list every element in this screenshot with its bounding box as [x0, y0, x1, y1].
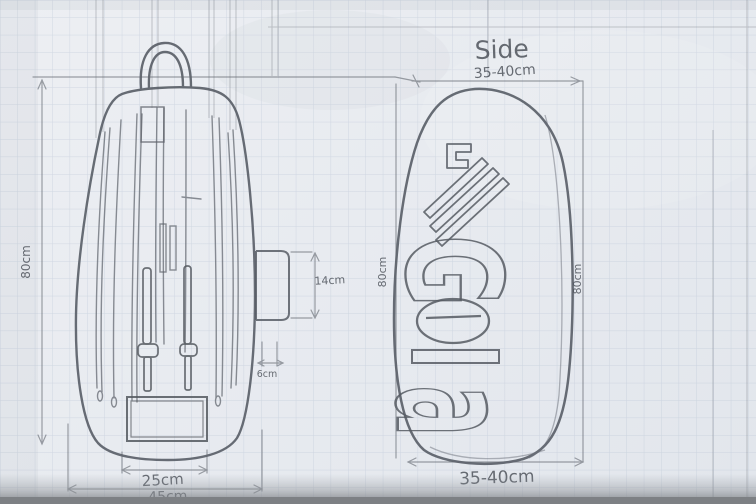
paper-smudge	[210, 10, 450, 110]
photo-bottom-strip	[0, 497, 756, 504]
front-height-label: 80cm	[19, 245, 33, 279]
pocket-height-label: 14cm	[314, 273, 345, 288]
side-right-height-label: 80cm	[571, 264, 584, 295]
paper-top-shade	[0, 0, 756, 10]
sketch-photo: G a	[0, 0, 756, 504]
pocket-width-label: 6cm	[257, 369, 278, 380]
side-title: Side	[474, 34, 529, 65]
logo-letter-a: a	[359, 385, 544, 436]
side-left-height-label: 80cm	[376, 257, 389, 288]
pencil-sketch-canvas: G a	[0, 0, 756, 504]
logo-letter-g: G	[376, 235, 529, 307]
